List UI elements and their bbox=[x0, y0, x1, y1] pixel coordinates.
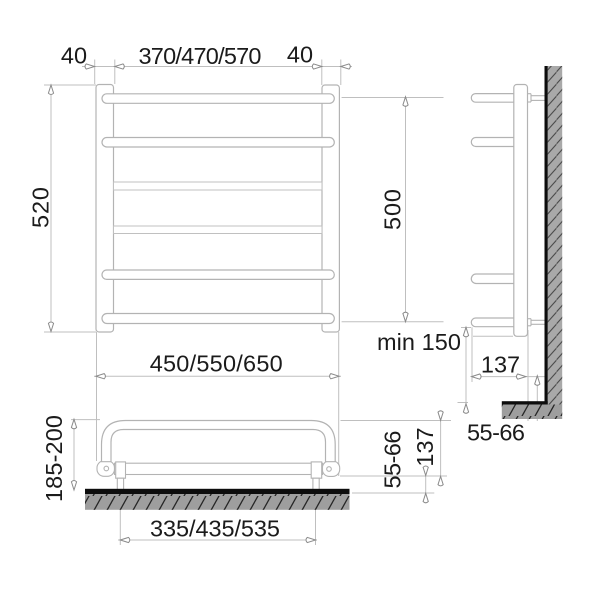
svg-text:55-66: 55-66 bbox=[467, 420, 525, 446]
svg-text:40: 40 bbox=[61, 43, 87, 69]
svg-text:40: 40 bbox=[287, 42, 313, 68]
svg-text:500: 500 bbox=[380, 189, 406, 230]
svg-text:335/435/535: 335/435/535 bbox=[150, 516, 280, 542]
svg-text:450/550/650: 450/550/650 bbox=[150, 351, 283, 377]
svg-text:520: 520 bbox=[28, 187, 54, 228]
svg-text:min 150: min 150 bbox=[377, 329, 461, 355]
svg-text:185-200: 185-200 bbox=[41, 415, 67, 502]
svg-text:370/470/570: 370/470/570 bbox=[139, 43, 262, 69]
svg-text:137: 137 bbox=[412, 427, 438, 466]
svg-text:137: 137 bbox=[481, 352, 520, 378]
svg-text:55-66: 55-66 bbox=[379, 431, 405, 489]
